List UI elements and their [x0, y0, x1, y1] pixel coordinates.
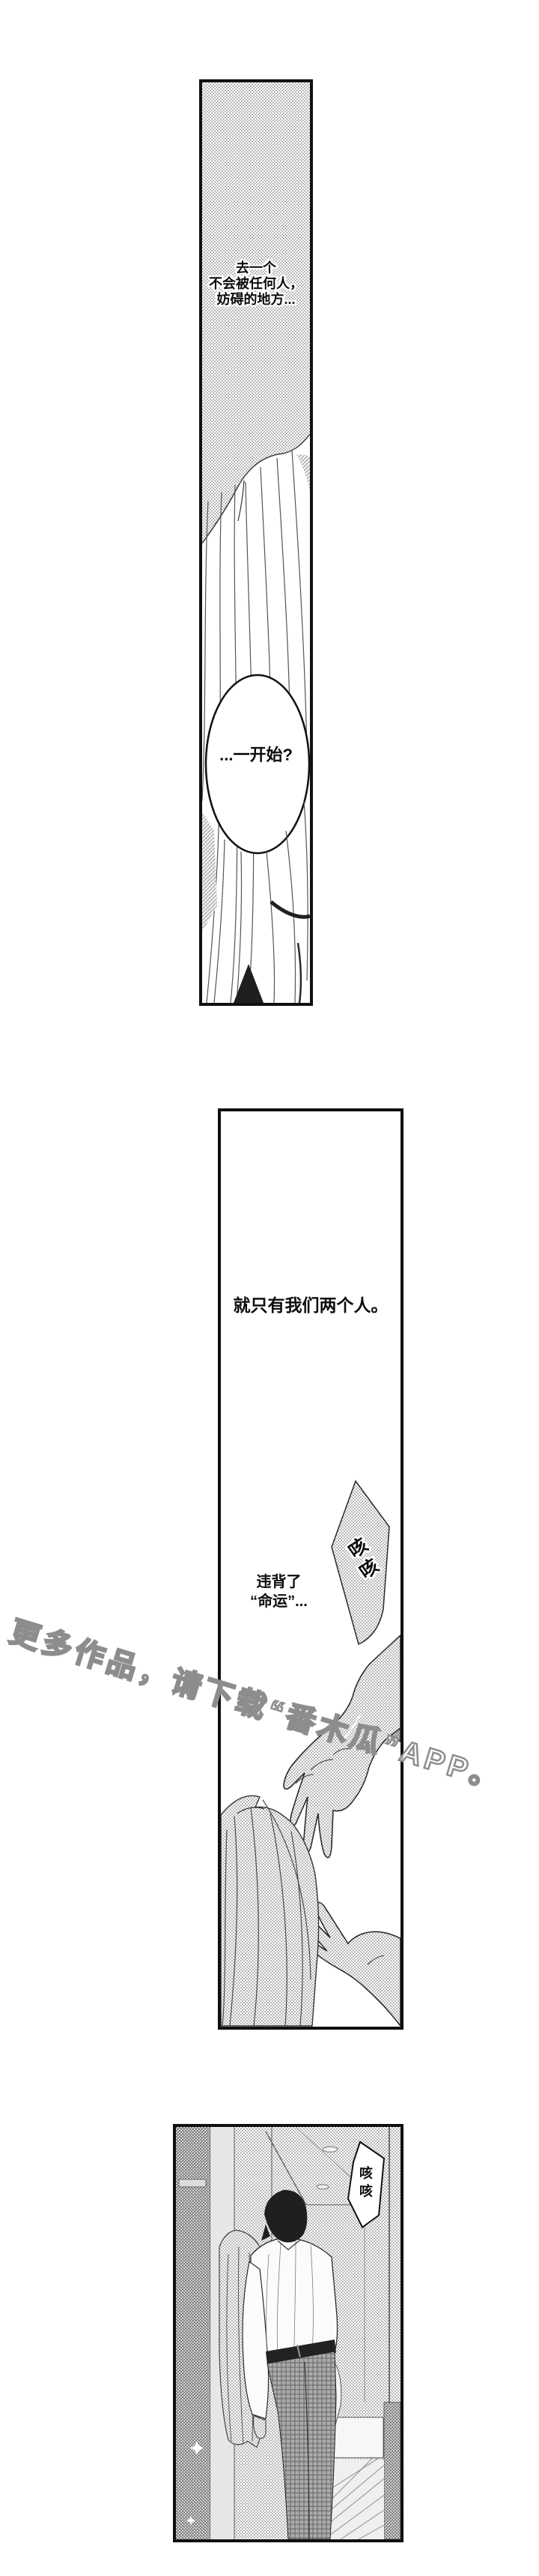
cough-dialogue: 咳 咳: [353, 2164, 380, 2200]
caption-line: 妨碍的地方...: [216, 292, 295, 307]
panel-1: 去一个 不会被任何人， 妨碍的地方... ...一开始?: [199, 79, 313, 1006]
caption-line: “命运”...: [250, 1593, 308, 1610]
narration-caption: 就只有我们两个人。: [221, 1291, 401, 1316]
wall-light: [317, 2185, 329, 2189]
panel-2: 就只有我们两个人。 咳 咳 违背了 “命运”...: [218, 1108, 404, 2030]
manga-page: { "page": { "width": 720, "height": 3442…: [0, 0, 539, 2576]
balloon-dialogue: ...一开始?: [202, 745, 310, 765]
panel-1-artwork: [202, 82, 310, 1003]
hatched-shadow-patch: [202, 812, 217, 932]
wall-light: [323, 2147, 338, 2152]
sfx-char: 咳: [353, 2182, 380, 2200]
caption-line: 不会被任何人，: [209, 276, 303, 291]
girl-hair-mass: [221, 1795, 319, 2026]
caption-line: 违背了: [257, 1574, 302, 1590]
caption-line: 去一个: [236, 260, 276, 275]
sfx-char: 咳: [353, 2164, 380, 2182]
panel-3: 咳 咳: [173, 2124, 404, 2542]
narration-caption-2: 违背了 “命运”...: [225, 1572, 333, 1611]
narration-caption: 去一个 不会被任何人， 妨碍的地方...: [202, 260, 310, 308]
left-door: [176, 2127, 210, 2539]
